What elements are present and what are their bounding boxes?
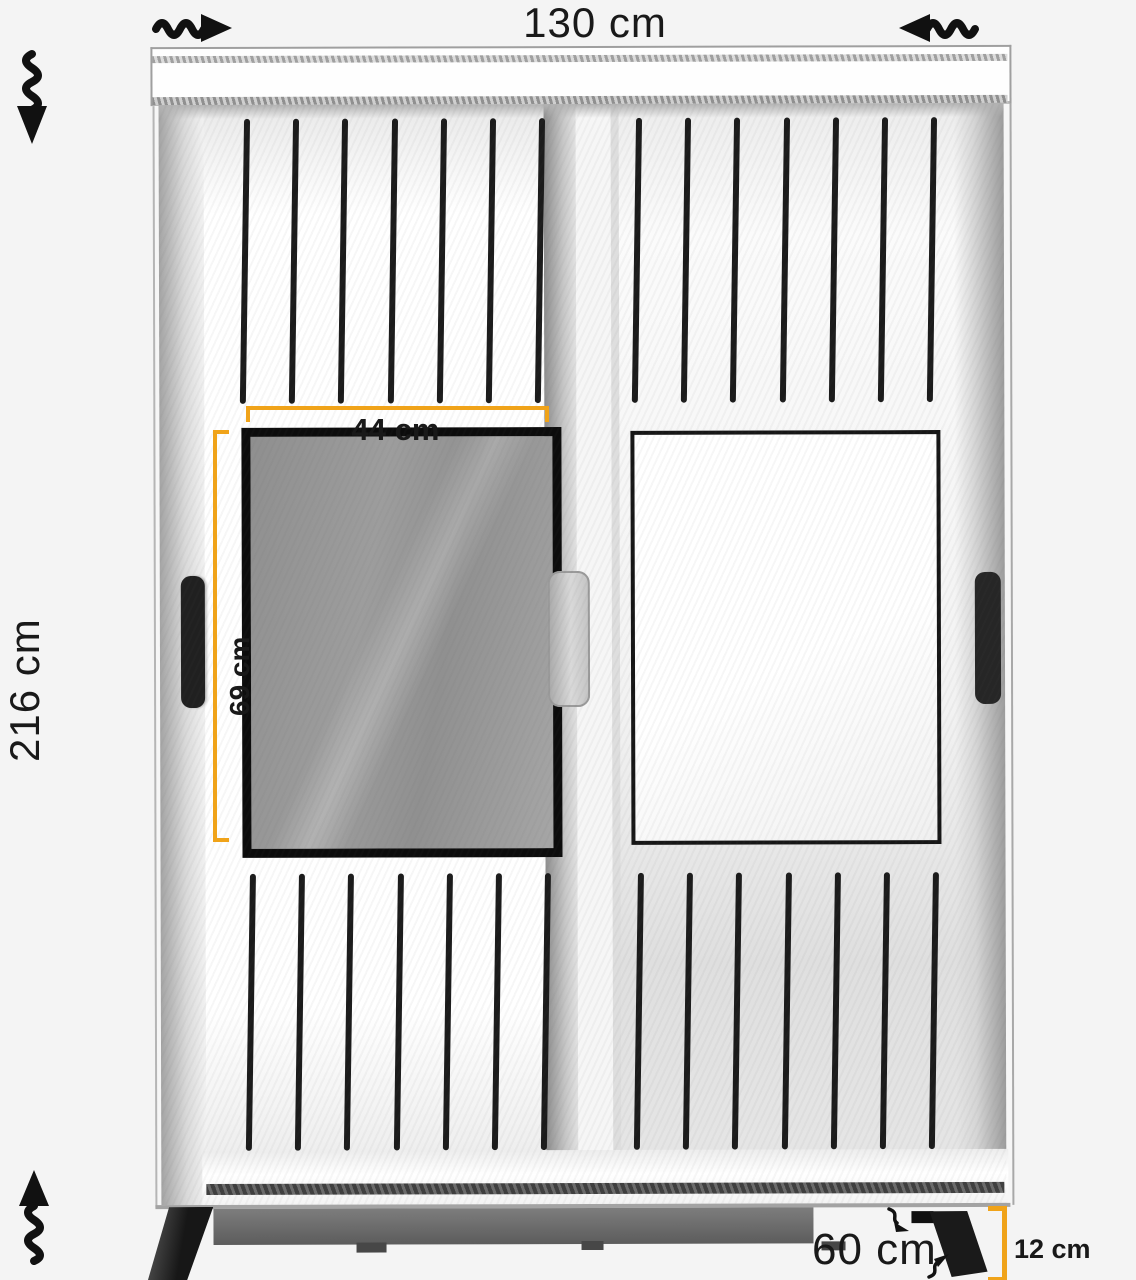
door-slat: [880, 872, 890, 1149]
door-slat: [338, 119, 348, 404]
mirror-height-label: 69 cm: [224, 637, 256, 716]
door-slat: [782, 872, 792, 1149]
height-dimension-label: 216 cm: [4, 618, 46, 762]
center-door-handle: [548, 571, 590, 707]
door-bottom-groove: [206, 1182, 1004, 1195]
left-door-handle: [181, 576, 205, 708]
door-slat: [289, 119, 299, 404]
width-dimension-label: 130 cm: [455, 2, 735, 44]
door-slat: [492, 873, 502, 1150]
door-slat: [634, 873, 644, 1150]
door-slat: [344, 874, 354, 1151]
mirror: [241, 427, 562, 858]
plinth-foot: [357, 1243, 387, 1253]
small-wavy-arrow-icon: [924, 1248, 956, 1280]
door-slat: [929, 872, 939, 1149]
front-left-leg: [147, 1207, 217, 1280]
right-door-top-slats: [634, 117, 940, 403]
door-slat: [780, 117, 790, 402]
door-slat: [437, 118, 447, 403]
door-slat: [878, 117, 888, 402]
door-slat: [388, 118, 398, 403]
door-slat: [295, 874, 305, 1151]
wavy-arrow-up-icon: [14, 1164, 54, 1268]
right-door-frame-panel: [630, 430, 941, 845]
wavy-arrow-down-icon: [12, 48, 52, 152]
leg-height-label: 12 cm: [1014, 1234, 1091, 1265]
right-door-handle: [975, 572, 1001, 704]
wardrobe: [150, 45, 1014, 1280]
recessed-plinth: [213, 1207, 813, 1245]
door-slat: [394, 873, 404, 1150]
door-slat: [443, 873, 453, 1150]
door-slat: [831, 872, 841, 1149]
door-bottom-rail: [202, 1149, 1008, 1205]
leg-height-bracket: [988, 1206, 1007, 1280]
door-slat: [829, 117, 839, 402]
left-door-top-slats: [242, 118, 548, 404]
door-slat: [730, 118, 740, 403]
door-slat: [240, 119, 250, 404]
door-slat: [683, 873, 693, 1150]
door-slat: [632, 118, 642, 403]
door-slat: [732, 873, 742, 1150]
dimension-diagram: 130 cm 216 cm 44 cm 69 cm 60 cm: [0, 0, 1136, 1280]
door-slat: [541, 873, 551, 1150]
mirror-width-label: 44 cm: [246, 412, 545, 448]
left-door-bottom-slats: [248, 873, 554, 1151]
wavy-arrow-left-icon: [893, 8, 981, 42]
door-slat: [681, 118, 691, 403]
door-slat: [535, 118, 545, 403]
right-door-bottom-slats: [636, 872, 942, 1150]
small-wavy-arrow-icon: [884, 1206, 916, 1238]
plinth-foot: [582, 1241, 604, 1250]
door-slat: [927, 117, 937, 402]
door-slat: [486, 118, 496, 403]
door-slat: [246, 874, 256, 1151]
depth-dimension-label: 60 cm: [812, 1228, 937, 1272]
wavy-arrow-right-icon: [150, 8, 238, 42]
